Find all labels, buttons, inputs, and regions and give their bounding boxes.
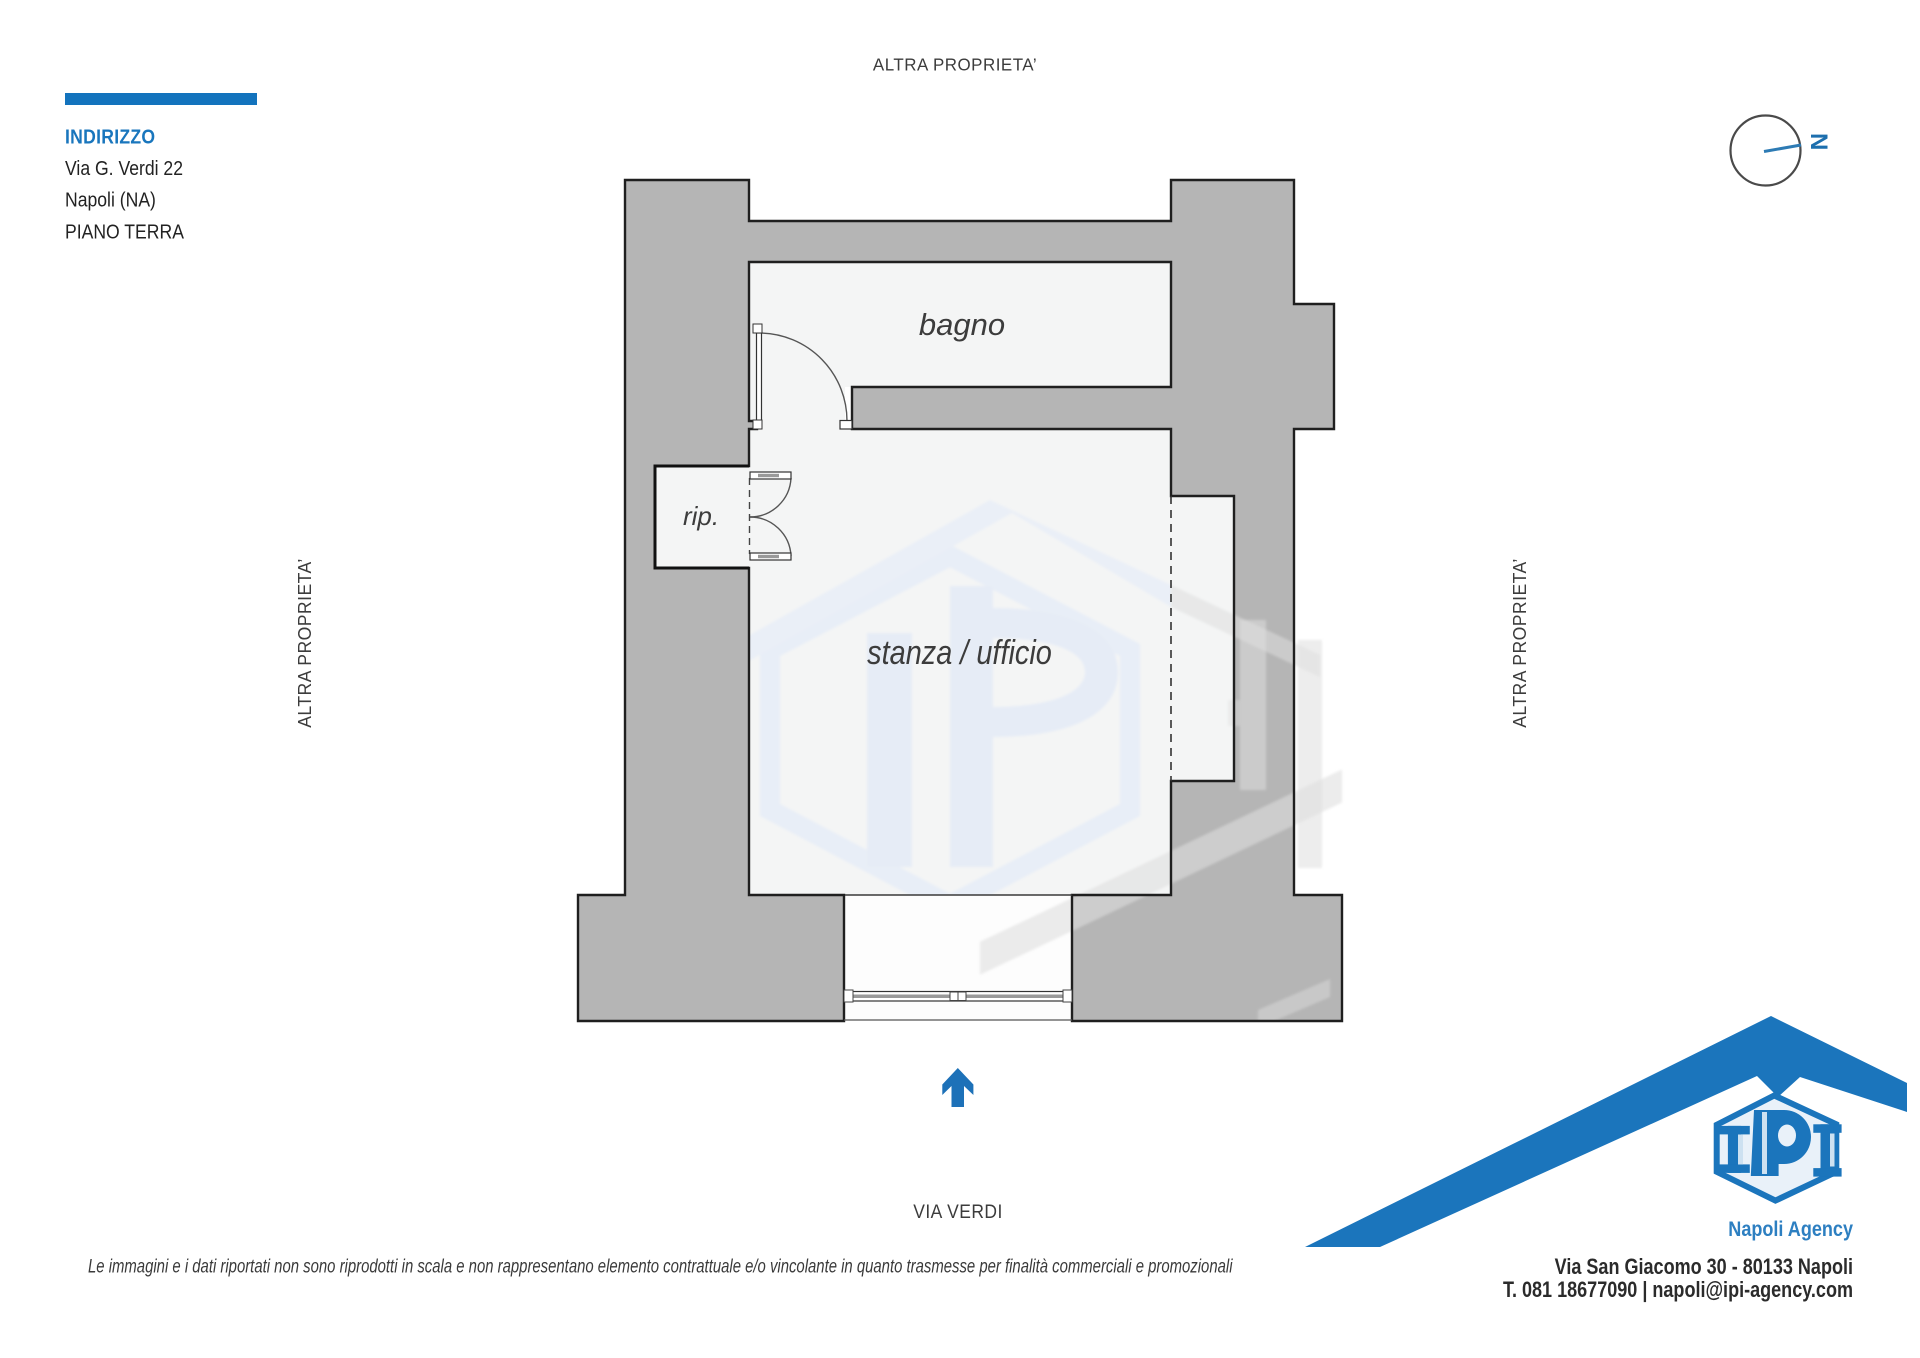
svg-text:VIA VERDI: VIA VERDI — [913, 1200, 1003, 1222]
svg-text:Napoli Agency: Napoli Agency — [1728, 1218, 1853, 1242]
svg-text:N: N — [1805, 133, 1832, 150]
svg-text:T. 081 18677090 | napoli@ipi-a: T. 081 18677090 | napoli@ipi-agency.com — [1503, 1278, 1853, 1302]
svg-text:rip.: rip. — [683, 501, 719, 531]
svg-text:ALTRA PROPRIETA’: ALTRA PROPRIETA’ — [295, 558, 316, 728]
svg-text:Napoli (NA): Napoli (NA) — [65, 189, 156, 211]
svg-text:Le immagini e i dati riportati: Le immagini e i dati riportati non sono … — [88, 1256, 1234, 1277]
svg-text:bagno: bagno — [919, 307, 1005, 342]
svg-text:INDIRIZZO: INDIRIZZO — [65, 125, 155, 147]
svg-text:PIANO TERRA: PIANO TERRA — [65, 220, 184, 242]
svg-text:stanza / ufficio: stanza / ufficio — [867, 633, 1052, 672]
svg-text:ALTRA PROPRIETA’: ALTRA PROPRIETA’ — [1510, 558, 1531, 728]
svg-text:Via G. Verdi 22: Via G. Verdi 22 — [65, 157, 183, 179]
svg-text:Via San Giacomo 30 - 80133 Nap: Via San Giacomo 30 - 80133 Napoli — [1555, 1255, 1853, 1279]
svg-text:ALTRA PROPRIETA’: ALTRA PROPRIETA’ — [873, 54, 1037, 74]
